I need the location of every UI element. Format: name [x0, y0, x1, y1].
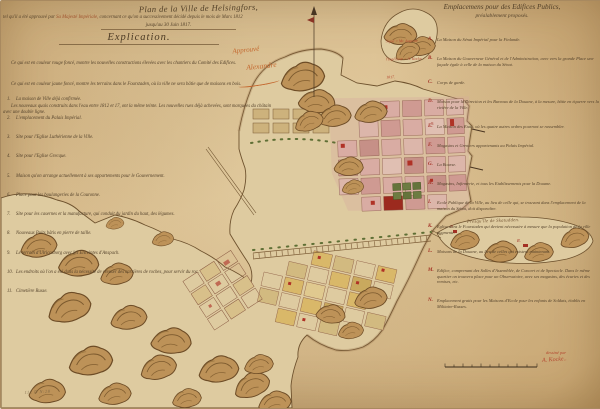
- legend-item: E.La Maison des Etats, où les quatre aut…: [428, 124, 599, 131]
- map-subtitle-date: jusqu'au 30 Juin 1817.: [101, 23, 236, 30]
- legend-item: 8.Nouveaux Puits bâtis en pierre de tail…: [7, 231, 279, 237]
- drawn-by-note: dessiné par: [546, 350, 566, 355]
- explication-list: 1.La maison de Ville déjà confirmée. 2.L…: [7, 85, 279, 308]
- legend-item: K.Eglise dans le Fourstaden qui devient …: [428, 224, 599, 236]
- legend-item: G.La Bourse.: [428, 162, 599, 169]
- legend-item: C.Corps de garde.: [428, 80, 599, 87]
- subtitle-pre: tel qu'il a été approuvé par: [3, 15, 56, 20]
- legend-item: 5.Maison qu'on arrange actuellement à se…: [7, 174, 279, 180]
- legend-item: M.Edifice, comprenant des Salles d'Assem…: [428, 268, 599, 286]
- emplacemens-heading: Emplacemens pour des Edifices Publics,: [407, 3, 597, 11]
- legend-item: 6.Place pour les boulangeries de la Cour…: [7, 193, 279, 199]
- imperial-approval-signature: Approuvé Alexandre: [230, 25, 282, 105]
- legend-item: B.La Maison du Gouverneur Général et de …: [428, 56, 599, 68]
- archival-pencil-note: 112 D N:28 K. A. 24/2 D 11.: [24, 374, 63, 409]
- legend-item: N.Emplacement gratis pour les Maisons d'…: [428, 298, 599, 310]
- legend-item: 11.Cimetière Russe.: [7, 289, 279, 295]
- legend-item: I.Ecole Publique de la Ville, au lieu de…: [428, 200, 599, 212]
- legend-item: A.La Maison du Sénat Impérial pour la Fi…: [428, 37, 599, 44]
- legend-item: 3.Site pour l'Eglise Luthérienne de la V…: [7, 135, 279, 141]
- map-subtitle: tel qu'il a été approuvé par Sa Majesté …: [3, 15, 355, 20]
- margin-note: Signé = Mr. Auguste l'Ingénieur = A. Koc…: [385, 26, 432, 93]
- approval-name: Alexandre: [246, 60, 277, 73]
- subtitle-majesty-red: Sa Majesté Impériale,: [56, 15, 98, 20]
- legend-item: 7.Site pour les casernes et la manufactu…: [7, 212, 279, 218]
- historical-map-scan: 9. P. R. Plan de la Ville de Helsingfors…: [0, 0, 600, 409]
- emplacemens-list: A.La Maison du Sénat Impérial pour la Fi…: [428, 25, 599, 322]
- explication-paragraph: Ce qui est en couleur rouge foncé, montr…: [3, 61, 273, 68]
- signature-flourish: [238, 77, 280, 89]
- legend-item: H.Magasins, Infirmerie, et tous les Etab…: [428, 181, 599, 188]
- legend-item: D.Maison pour la Direction et les Bureau…: [428, 99, 599, 111]
- legend-item: 4.Site pour l'Eglise Grecque.: [7, 154, 279, 160]
- scale-bar: [445, 364, 537, 368]
- legend-item: F.Magasins et Greniers appartenants au P…: [428, 143, 599, 150]
- emplacemens-subheading: préalablement proposés.: [407, 13, 597, 19]
- explication-heading: Explication.: [59, 32, 219, 45]
- legend-item: 10.Les endroits où l'on a été dans la né…: [7, 270, 279, 276]
- legend-item: 9.Le terrain d'Ulricasborg avec les Ence…: [7, 251, 279, 257]
- subtitle-post: concernant ce qu'on a successivement déc…: [98, 15, 242, 20]
- legend-item: L.Maisons de la Douane, au lieu de celle…: [428, 249, 599, 256]
- legend-item: 2.L'emplacement du Palais Impérial.: [7, 116, 279, 122]
- approval-word: Approuvé: [232, 42, 277, 55]
